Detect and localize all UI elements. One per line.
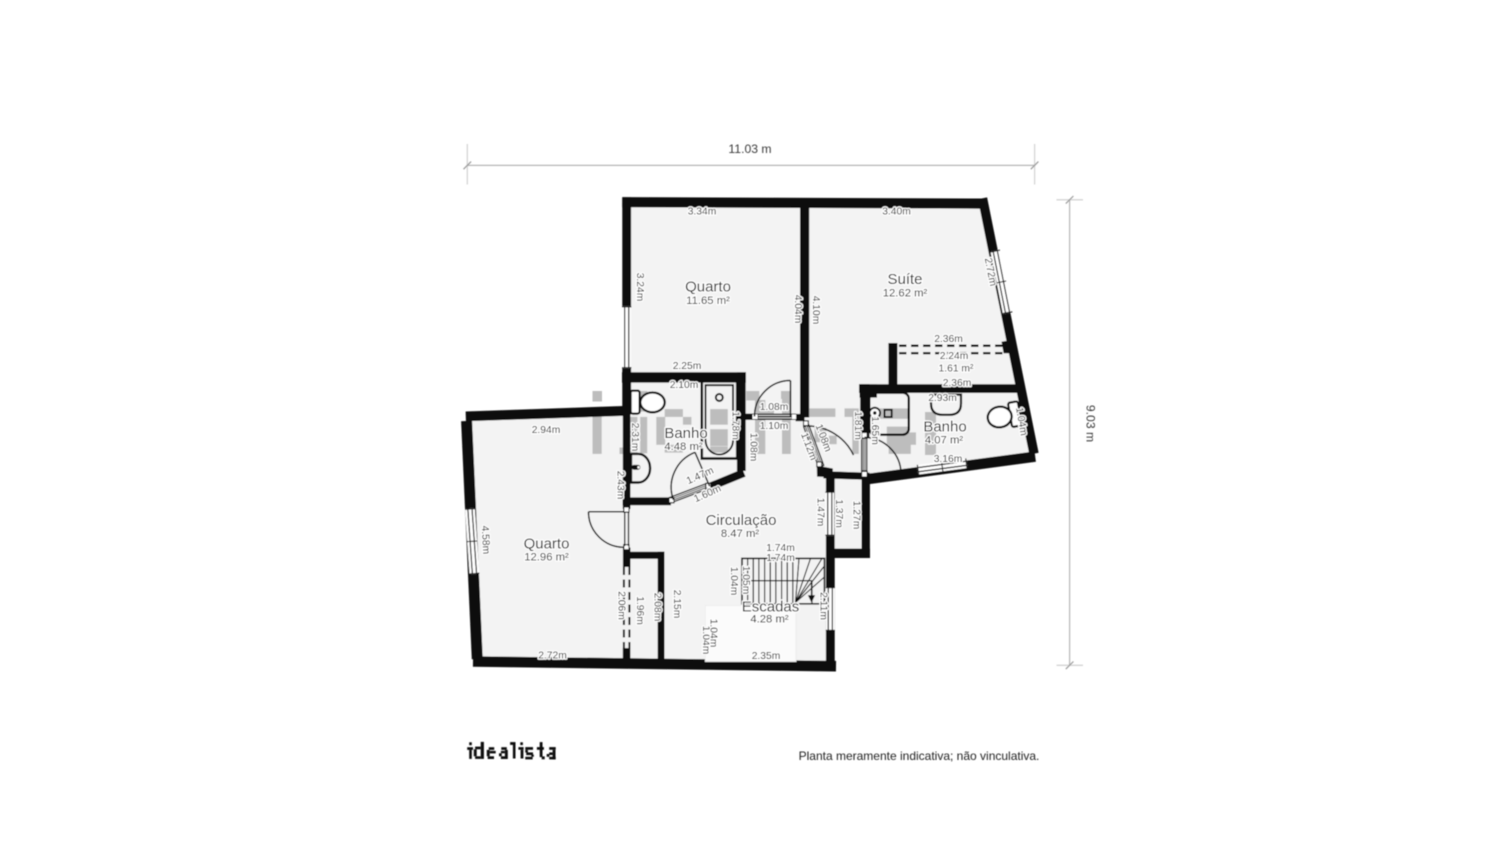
svg-text:1.05m: 1.05m: [740, 566, 751, 595]
svg-text:1.65m: 1.65m: [869, 416, 880, 445]
svg-text:2.36m: 2.36m: [934, 334, 963, 345]
svg-text:2.72m: 2.72m: [538, 650, 567, 661]
svg-text:1.47m: 1.47m: [815, 498, 826, 527]
svg-text:2.25m: 2.25m: [673, 361, 702, 372]
svg-text:2.08m: 2.08m: [652, 593, 663, 622]
svg-text:Suíte: Suíte: [887, 271, 922, 288]
svg-text:11.03 m: 11.03 m: [728, 142, 771, 156]
svg-text:1.08m: 1.08m: [760, 402, 789, 413]
svg-text:4.48 m²: 4.48 m²: [664, 441, 703, 453]
svg-text:1.78m: 1.78m: [730, 411, 741, 440]
svg-text:1.96m: 1.96m: [634, 596, 645, 625]
svg-text:Quarto: Quarto: [685, 279, 731, 296]
svg-text:1.10m: 1.10m: [760, 421, 789, 432]
svg-text:2.35m: 2.35m: [752, 651, 781, 662]
svg-text:2.11m: 2.11m: [818, 592, 829, 620]
svg-text:2.31m: 2.31m: [629, 423, 640, 452]
svg-text:1.37m: 1.37m: [833, 499, 844, 528]
svg-text:2.15m: 2.15m: [671, 590, 682, 619]
svg-text:Banho: Banho: [664, 425, 707, 442]
svg-text:2.36m: 2.36m: [943, 378, 972, 389]
svg-text:1.04m: 1.04m: [708, 619, 719, 648]
svg-text:11.65 m²: 11.65 m²: [686, 295, 730, 307]
svg-text:2.43m: 2.43m: [615, 471, 626, 500]
svg-text:Banho: Banho: [923, 418, 966, 435]
svg-text:1.74m: 1.74m: [766, 553, 795, 564]
svg-text:Planta meramente indicativa; n: Planta meramente indicativa; não vincula…: [799, 749, 1040, 763]
svg-text:2.94m: 2.94m: [532, 425, 561, 436]
svg-text:2.10m: 2.10m: [670, 380, 699, 391]
svg-text:1.81m: 1.81m: [852, 411, 863, 440]
svg-text:Quarto: Quarto: [524, 535, 570, 552]
svg-text:4.07 m²: 4.07 m²: [925, 435, 964, 447]
svg-text:1.08m: 1.08m: [748, 433, 759, 462]
svg-text:4.58m: 4.58m: [479, 525, 491, 554]
svg-text:1.27m: 1.27m: [851, 501, 862, 530]
svg-text:3.24m: 3.24m: [634, 273, 645, 302]
svg-text:3.40m: 3.40m: [882, 207, 911, 218]
svg-text:8.47 m²: 8.47 m²: [721, 528, 760, 540]
svg-text:3.34m: 3.34m: [688, 207, 717, 218]
svg-text:4.10m: 4.10m: [810, 296, 821, 325]
svg-text:4.04m: 4.04m: [792, 295, 803, 324]
svg-text:12.96 m²: 12.96 m²: [524, 552, 569, 564]
svg-text:1.04m: 1.04m: [728, 567, 739, 596]
svg-text:9.03 m: 9.03 m: [1084, 405, 1098, 442]
svg-text:1.61 m²: 1.61 m²: [939, 363, 974, 374]
svg-text:Circulação: Circulação: [706, 512, 777, 529]
svg-text:4.28 m²: 4.28 m²: [750, 614, 789, 626]
svg-text:12.62 m²: 12.62 m²: [883, 287, 928, 299]
svg-text:2.24m: 2.24m: [940, 351, 969, 362]
svg-text:2.06m: 2.06m: [616, 591, 627, 620]
svg-text:2.93m: 2.93m: [928, 393, 957, 404]
svg-text:3.16m: 3.16m: [934, 454, 963, 465]
